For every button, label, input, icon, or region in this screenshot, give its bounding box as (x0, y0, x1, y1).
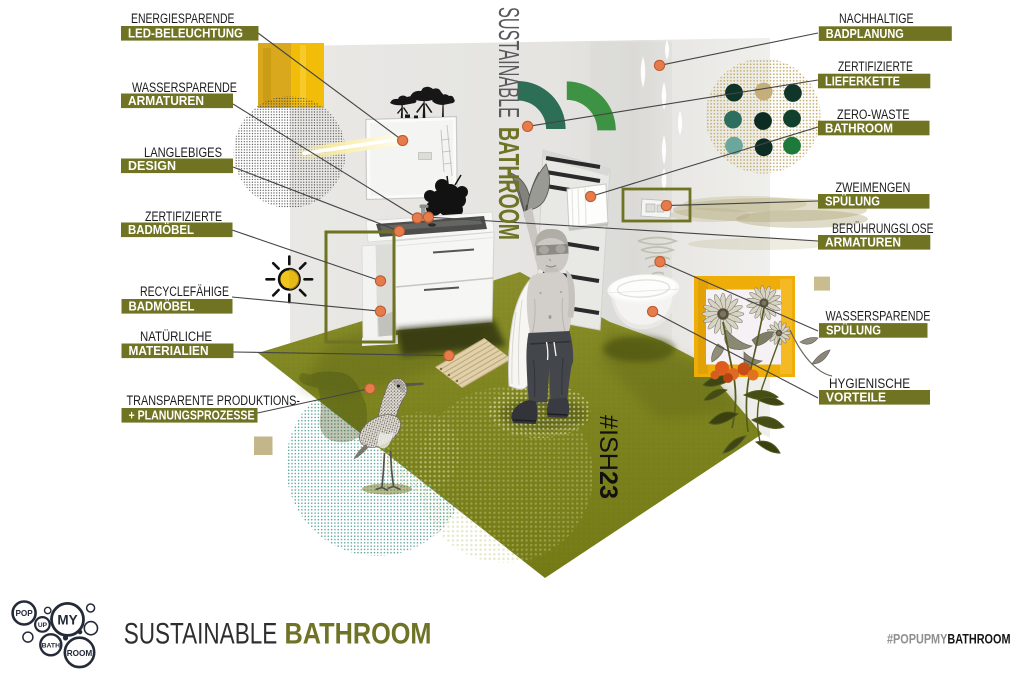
svg-text:SPÜLUNG: SPÜLUNG (826, 323, 881, 338)
svg-text:SUSTAINABLE: SUSTAINABLE (124, 618, 278, 651)
svg-text:#POPUPMYBATHROOM: #POPUPMYBATHROOM (887, 632, 1011, 647)
svg-text:ZERTIFIZIERTE: ZERTIFIZIERTE (838, 59, 913, 74)
svg-text:SUSTAINABLE: SUSTAINABLE (492, 7, 524, 118)
svg-text:SPÜLUNG: SPÜLUNG (825, 194, 880, 209)
svg-text:BATH: BATH (42, 642, 60, 649)
svg-text:LED-BELEUCHTUNG: LED-BELEUCHTUNG (128, 26, 243, 41)
svg-text:ARMATUREN: ARMATUREN (128, 93, 204, 108)
svg-text:POP: POP (15, 609, 33, 618)
svg-text:MATERIALIEN: MATERIALIEN (129, 343, 209, 358)
svg-text:BATHROOM: BATHROOM (825, 120, 893, 135)
svg-text:BATHROOM: BATHROOM (285, 618, 432, 651)
svg-text:DESIGN: DESIGN (128, 158, 176, 173)
svg-text:MY: MY (57, 613, 77, 628)
svg-text:RECYCLEFÄHIGE: RECYCLEFÄHIGE (140, 284, 229, 299)
svg-text:BADMÖBEL: BADMÖBEL (128, 222, 194, 237)
svg-text:NACHHALTIGE: NACHHALTIGE (839, 11, 914, 26)
svg-text:BADPLANUNG: BADPLANUNG (826, 26, 904, 41)
svg-text:TRANSPARENTE PRODUKTIONS-: TRANSPARENTE PRODUKTIONS- (127, 393, 301, 408)
svg-text:BADMÖBEL: BADMÖBEL (129, 299, 195, 314)
svg-text:+ PLANUNGSPROZESSE: + PLANUNGSPROZESSE (129, 408, 255, 423)
svg-text:ARMATUREN: ARMATUREN (825, 235, 901, 250)
svg-text:ENERGIESPARENDE: ENERGIESPARENDE (131, 11, 235, 26)
svg-text:ROOM: ROOM (67, 649, 93, 658)
svg-text:BATHROOM: BATHROOM (492, 127, 524, 240)
svg-text:WASSERSPARENDE: WASSERSPARENDE (826, 309, 931, 324)
svg-text:#ISH23: #ISH23 (594, 415, 622, 499)
svg-text:NATÜRLICHE: NATÜRLICHE (140, 329, 212, 344)
svg-text:UP: UP (38, 622, 48, 629)
svg-text:LIEFERKETTE: LIEFERKETTE (825, 73, 900, 88)
svg-text:VORTEILE: VORTEILE (826, 390, 886, 405)
